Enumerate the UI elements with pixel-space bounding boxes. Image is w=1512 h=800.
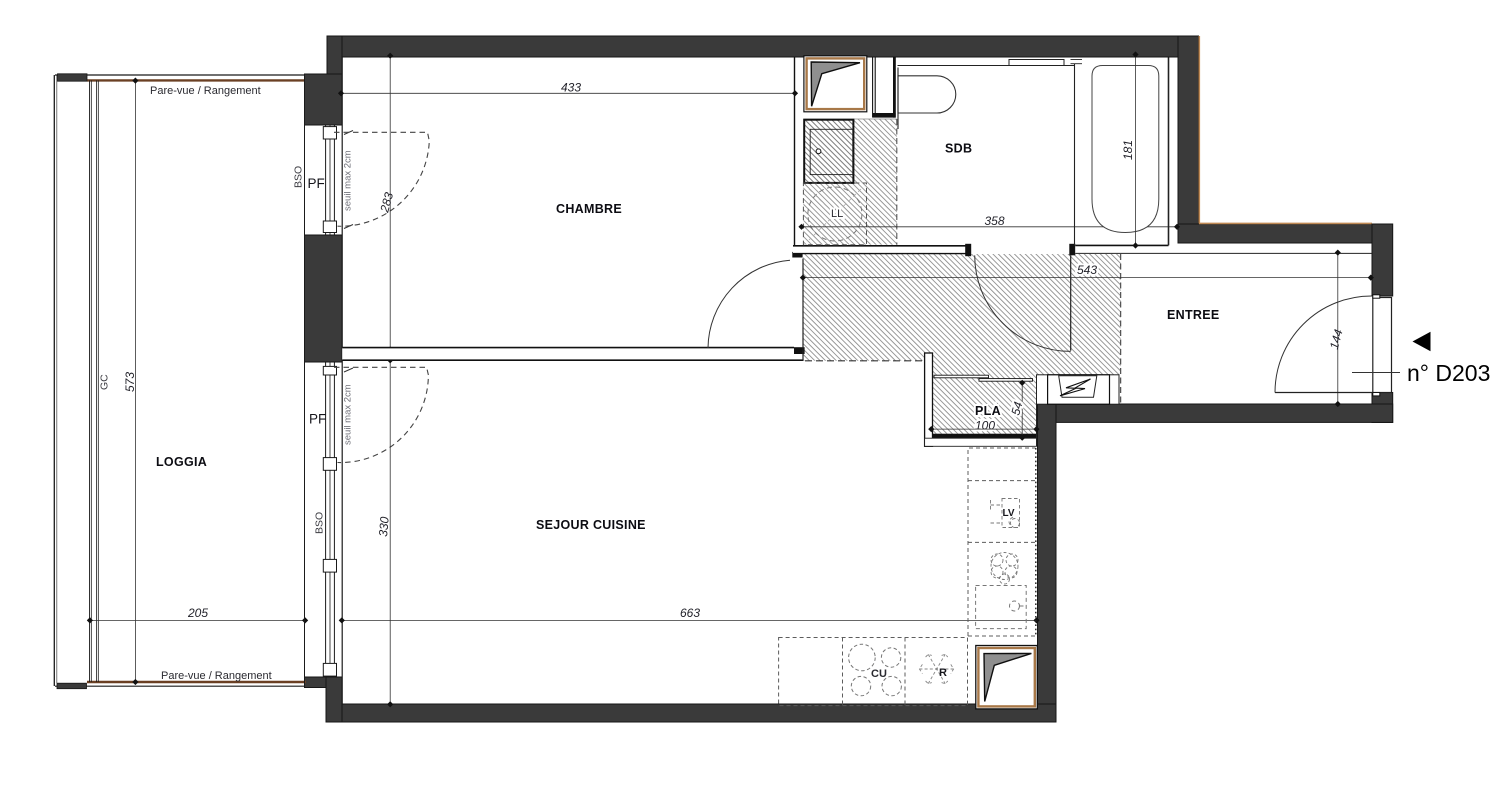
svg-text:PLA: PLA bbox=[975, 404, 1001, 418]
svg-text:seuil max 2cm: seuil max 2cm bbox=[343, 150, 354, 211]
svg-text:100: 100 bbox=[975, 419, 995, 433]
svg-text:SDB: SDB bbox=[945, 142, 972, 156]
svg-text:181: 181 bbox=[1121, 140, 1135, 160]
svg-text:LV: LV bbox=[1003, 508, 1015, 519]
svg-text:205: 205 bbox=[187, 606, 208, 620]
svg-text:433: 433 bbox=[561, 81, 581, 95]
svg-text:BSO: BSO bbox=[293, 166, 305, 188]
svg-text:SEJOUR CUISINE: SEJOUR CUISINE bbox=[536, 518, 646, 532]
svg-text:663: 663 bbox=[680, 606, 700, 620]
svg-text:PF: PF bbox=[308, 176, 325, 191]
svg-text:GC: GC bbox=[99, 374, 111, 390]
svg-text:CHAMBRE: CHAMBRE bbox=[556, 202, 622, 216]
svg-text:543: 543 bbox=[1077, 263, 1097, 277]
svg-text:Pare-vue / Rangement: Pare-vue / Rangement bbox=[161, 670, 272, 682]
svg-text:ENTREE: ENTREE bbox=[1167, 308, 1220, 322]
svg-text:seuil max 2cm: seuil max 2cm bbox=[343, 384, 354, 445]
svg-text:CU: CU bbox=[871, 668, 887, 680]
svg-text:Pare-vue / Rangement: Pare-vue / Rangement bbox=[150, 85, 261, 97]
svg-text:LOGGIA: LOGGIA bbox=[156, 455, 207, 469]
svg-text:573: 573 bbox=[123, 372, 137, 392]
svg-text:LL: LL bbox=[831, 208, 843, 220]
svg-text:358: 358 bbox=[985, 214, 1005, 228]
svg-text:330: 330 bbox=[376, 516, 392, 537]
svg-text:R: R bbox=[939, 667, 947, 679]
svg-text:BSO: BSO bbox=[314, 512, 326, 534]
svg-text:PF: PF bbox=[309, 412, 326, 427]
svg-text:n° D203: n° D203 bbox=[1407, 360, 1490, 386]
